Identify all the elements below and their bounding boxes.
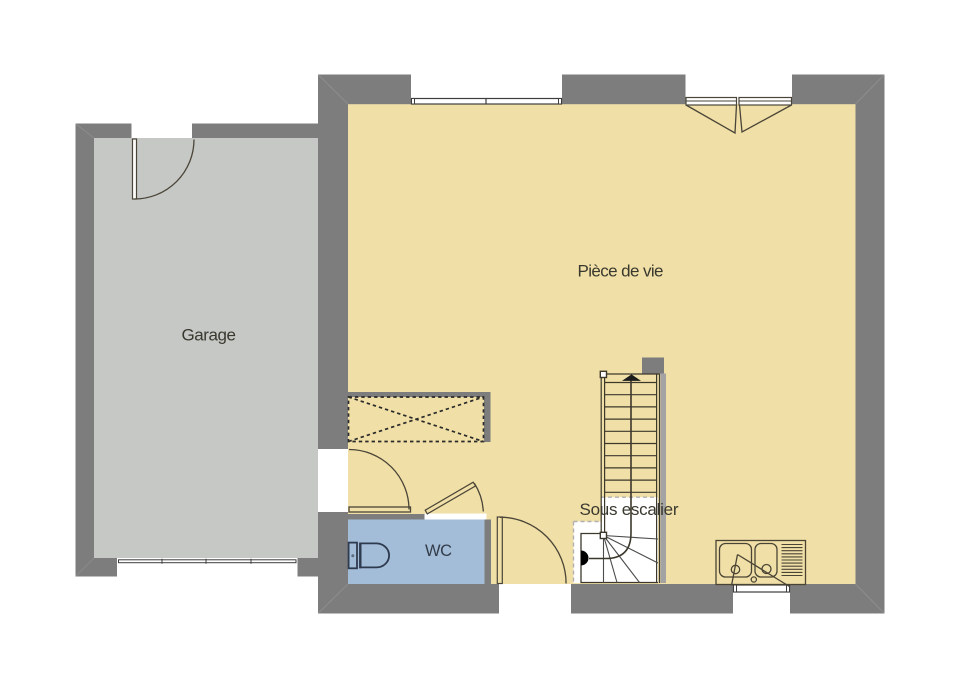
- svg-text:Pièce de vie: Pièce de vie: [578, 262, 664, 281]
- svg-text:Garage: Garage: [182, 326, 236, 345]
- svg-text:Sous escalier: Sous escalier: [580, 500, 679, 519]
- svg-text:WC: WC: [425, 542, 452, 560]
